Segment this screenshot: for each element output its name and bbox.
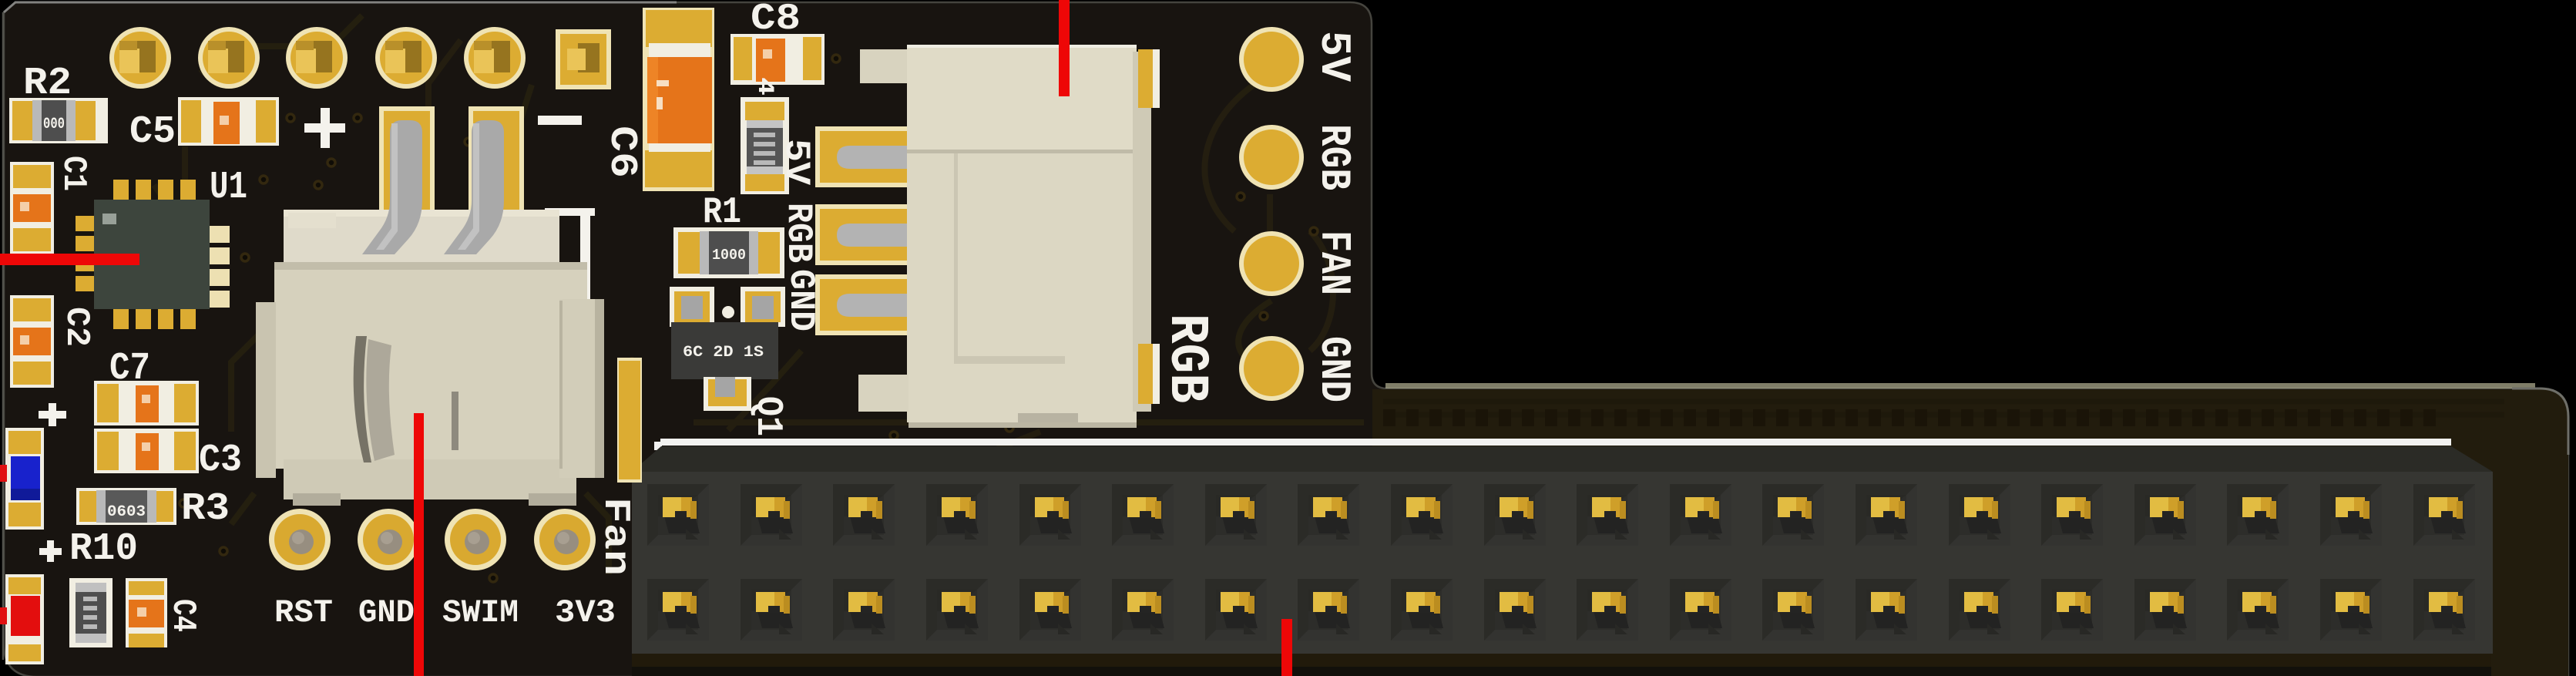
svg-text:C5: C5 — [129, 110, 176, 154]
svg-text:R3: R3 — [181, 487, 230, 531]
svg-text:RGB: RGB — [778, 203, 818, 263]
svg-text:3V3: 3V3 — [555, 594, 616, 631]
svg-text:4: 4 — [751, 77, 778, 96]
svg-text:C2: C2 — [57, 307, 96, 347]
svg-text:R2: R2 — [23, 62, 72, 106]
svg-text:Fan: Fan — [594, 497, 636, 576]
svg-text:FAN: FAN — [1309, 230, 1359, 295]
svg-text:GND: GND — [1309, 336, 1359, 402]
svg-text:C1: C1 — [54, 156, 92, 191]
svg-text:GND: GND — [781, 269, 821, 331]
svg-text:1000: 1000 — [712, 247, 746, 264]
svg-text:RST: RST — [274, 594, 333, 631]
svg-text:C8: C8 — [751, 0, 801, 40]
svg-text:C3: C3 — [199, 439, 242, 483]
svg-text:GND: GND — [358, 594, 415, 631]
svg-text:R1: R1 — [703, 192, 741, 234]
svg-text:C4: C4 — [163, 599, 202, 632]
svg-text:RGB: RGB — [1309, 124, 1359, 190]
svg-text:000: 000 — [43, 116, 65, 133]
svg-text:C6: C6 — [599, 126, 643, 178]
svg-text:C7: C7 — [109, 347, 150, 391]
svg-text:5V: 5V — [776, 139, 816, 185]
svg-text:SWIM: SWIM — [442, 594, 519, 631]
svg-text:U1: U1 — [210, 166, 247, 210]
svg-text:RGB: RGB — [1155, 314, 1217, 403]
svg-text:Q1: Q1 — [747, 396, 788, 436]
svg-text:6C 2D 1S: 6C 2D 1S — [683, 344, 764, 362]
svg-text:R10: R10 — [69, 527, 138, 571]
svg-text:0603: 0603 — [107, 503, 146, 521]
svg-text:5V: 5V — [1309, 31, 1359, 82]
